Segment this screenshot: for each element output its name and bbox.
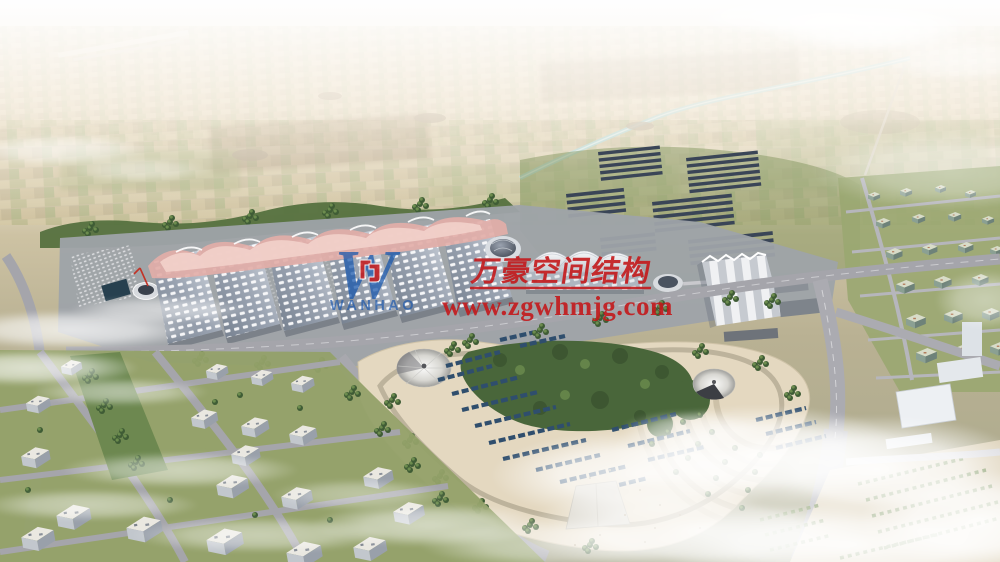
aerial-rendering-canvas: W WANHAO 万豪空间结构 www.zgwhmjg.com (0, 0, 1000, 562)
scene: W WANHAO 万豪空间结构 www.zgwhmjg.com (0, 0, 1000, 562)
watermark-website: www.zgwhmjg.com (442, 291, 673, 321)
cloud (60, 452, 300, 488)
cloud (270, 479, 450, 511)
company-name-text: 万豪空间结构 (469, 254, 654, 288)
cloud (70, 158, 210, 182)
watermark-company: 万豪空间结构 (469, 254, 656, 288)
cone-pavilion-west (397, 349, 451, 387)
cloud (620, 410, 760, 450)
logo-wordmark: WANHAO (330, 298, 417, 314)
cloud (30, 378, 210, 406)
round-venue-dome (138, 285, 154, 295)
website-text: www.zgwhmjg.com (442, 291, 673, 321)
cloud (70, 296, 250, 324)
